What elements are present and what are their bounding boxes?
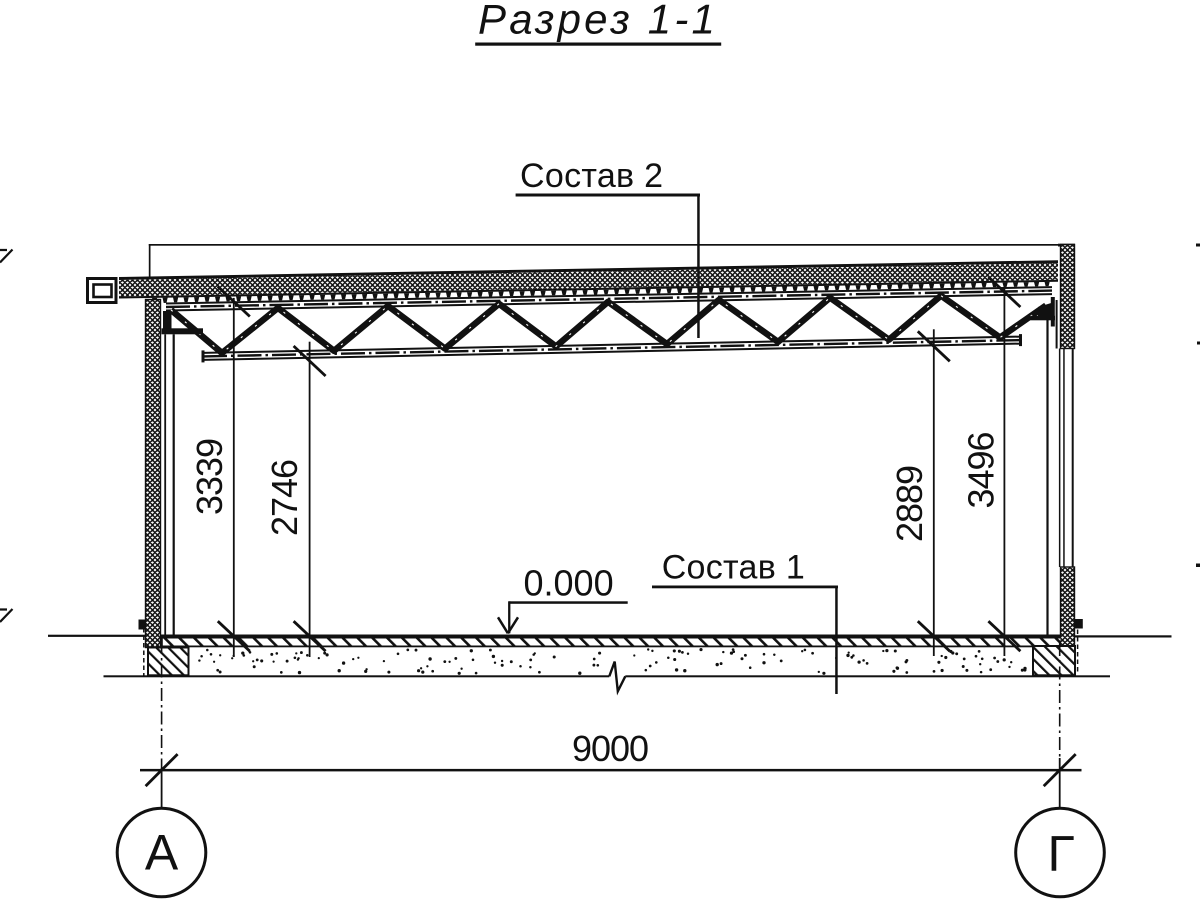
svg-text:3339: 3339	[189, 439, 230, 515]
svg-text:2746: 2746	[264, 460, 305, 536]
svg-text:Состав 1: Состав 1	[662, 549, 805, 587]
svg-text:Состав 2: Состав 2	[520, 157, 663, 195]
svg-text:2889: 2889	[889, 466, 930, 542]
svg-text:3496: 3496	[961, 432, 1002, 508]
svg-text:9000: 9000	[572, 728, 648, 769]
svg-text:0.000: 0.000	[524, 563, 614, 604]
svg-text:А: А	[145, 825, 179, 881]
svg-text:Г: Г	[1047, 826, 1074, 882]
svg-text:Разрез 1-1: Разрез 1-1	[478, 0, 718, 43]
